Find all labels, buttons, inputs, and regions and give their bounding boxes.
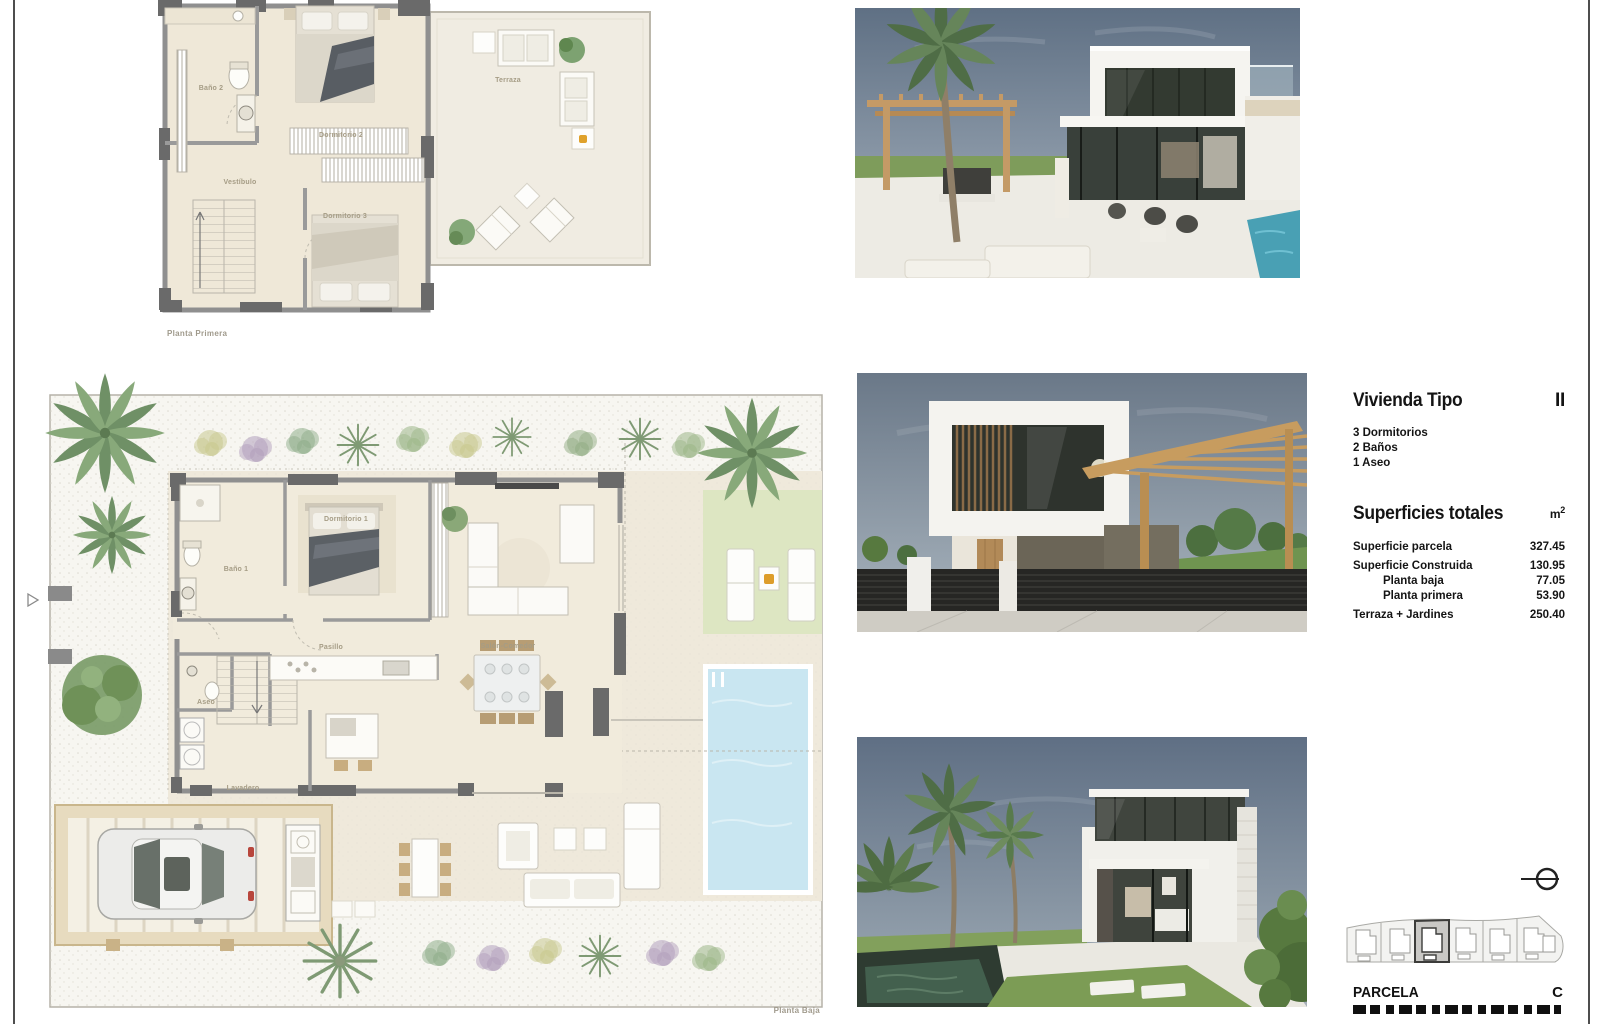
parcela-code: C	[1552, 984, 1563, 1001]
terrace-area	[430, 12, 650, 265]
right-page-rule	[1588, 0, 1590, 1024]
room-label-lavadero: Lavadero	[227, 785, 260, 792]
surface-row-planta-baja: Planta baja77.05	[1353, 575, 1565, 587]
surfaces-title: Superficies totales	[1353, 503, 1503, 525]
parcela-label: PARCELA	[1353, 984, 1419, 1001]
villa-render-3	[1082, 789, 1257, 942]
surfaces-table: Superficie parcela327.45 Superficie Cons…	[1353, 541, 1565, 621]
render-photo-exterior-day	[855, 8, 1300, 278]
room-label-vestibulo: Vestíbulo	[224, 179, 257, 186]
swimming-pool	[703, 664, 813, 895]
north-indicator-icon	[1520, 866, 1560, 892]
left-page-rule	[13, 0, 15, 1024]
room-label-terraza: Terraza	[495, 77, 521, 84]
garden-tree	[62, 655, 142, 735]
unit-title: Vivienda Tipo	[1353, 390, 1462, 412]
bed-dormitorio-3	[312, 215, 398, 307]
parcela-caption: PARCELA C	[1353, 984, 1563, 1001]
aseo-sink	[187, 666, 197, 676]
surface-row-planta-primera: Planta primera53.90	[1353, 590, 1565, 602]
feature-bathrooms: 2 Baños	[1353, 441, 1565, 456]
pool-render-3	[857, 945, 1009, 1007]
garage-carport	[55, 805, 332, 951]
triangle-marker-icon	[26, 592, 40, 608]
cropped-text-bar	[1353, 1005, 1561, 1014]
aseo-toilet	[205, 682, 219, 700]
villa-render-1	[1055, 46, 1300, 218]
plan-caption-ground: Planta Baja	[700, 1006, 820, 1015]
floor-plan-first: Baño 2 Dormitorio 2 Vestíbulo Dormitorio…	[60, 0, 660, 345]
room-label-dormitorio2: Dormitorio 2	[319, 132, 363, 139]
room-label-salon-comedor: Salón-Comedor	[481, 643, 536, 650]
stairs-first-floor	[193, 200, 255, 293]
surface-row-construida: Superficie Construida130.95	[1353, 560, 1565, 572]
unit-info-panel: Vivienda Tipo II 3 Dormitorios 2 Baños 1…	[1353, 390, 1565, 621]
first-floor-house	[158, 0, 434, 312]
feature-bedrooms: 3 Dormitorios	[1353, 426, 1565, 441]
brochure-page: Baño 2 Dormitorio 2 Vestíbulo Dormitorio…	[0, 0, 1600, 1024]
room-label-pasillo: Pasillo	[319, 644, 343, 651]
room-label-bano2: Baño 2	[199, 85, 224, 92]
surface-row-parcela: Superficie parcela327.45	[1353, 541, 1565, 553]
surface-row-terraza-jardines: Terraza + Jardines250.40	[1353, 609, 1565, 621]
room-label-aseo: Aseo	[197, 699, 215, 706]
lawn-area	[703, 490, 822, 634]
room-label-dormitorio1: Dormitorio 1	[324, 516, 368, 523]
bed-dormitorio-2	[284, 6, 390, 102]
room-label-dormitorio3: Dormitorio 3	[323, 213, 367, 220]
surfaces-unit: m2	[1550, 503, 1565, 521]
unit-type-code: II	[1555, 390, 1565, 412]
floor-plan-ground: Dormitorio 1 Baño 1 Pasillo Salón-Comedo…	[40, 373, 830, 1024]
plan-caption-first: Planta Primera	[167, 329, 227, 338]
render-photo-garden-view	[857, 737, 1307, 1007]
render-photo-street-view	[857, 373, 1307, 632]
room-label-bano1: Baño 1	[224, 566, 249, 573]
parcela-site-diagram	[1343, 902, 1568, 974]
feature-toilets: 1 Aseo	[1353, 456, 1565, 471]
car-top-view	[98, 824, 256, 924]
